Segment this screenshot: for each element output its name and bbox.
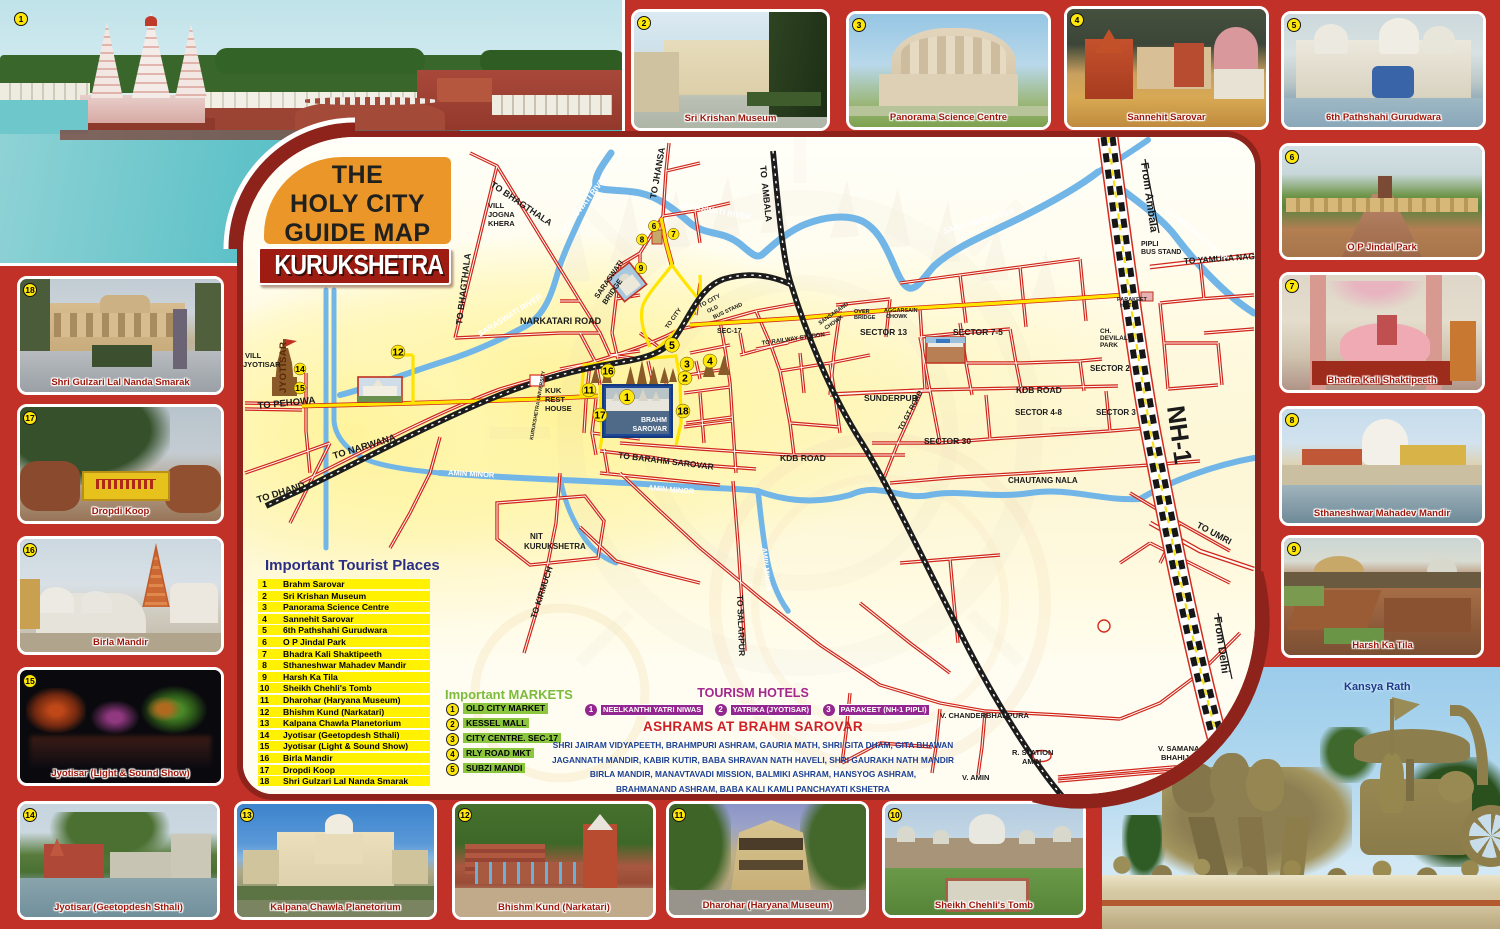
svg-text:KUK: KUK [545,386,562,395]
svg-text:4: 4 [707,357,713,368]
svg-text:KDB ROAD: KDB ROAD [1016,385,1062,395]
svg-text:REST: REST [545,395,565,404]
svg-text:5: 5 [669,340,675,352]
svg-text:8: 8 [640,235,645,244]
svg-text:SUNDERPUR: SUNDERPUR [864,393,918,403]
svg-text:2: 2 [682,374,688,385]
svg-text:JYOTISAR: JYOTISAR [243,360,281,369]
svg-text:SECTOR 4-8: SECTOR 4-8 [1015,408,1063,417]
svg-text:BRAHM: BRAHM [641,417,667,424]
svg-text:V. SAMANA: V. SAMANA [1158,744,1200,753]
svg-text:SEC-17: SEC-17 [717,328,742,335]
svg-text:CHOWK: CHOWK [886,314,907,320]
svg-text:HOTEL: HOTEL [1120,303,1139,309]
svg-text:1: 1 [624,392,630,404]
svg-text:BHAHIJ: BHAHIJ [1161,753,1189,762]
svg-text:NARKATARI ROAD: NARKATARI ROAD [520,316,602,326]
svg-text:NIT: NIT [530,532,543,541]
svg-text:12: 12 [392,348,404,359]
svg-text:KHERA: KHERA [488,219,515,228]
svg-text:JOGNA: JOGNA [488,210,515,219]
svg-text:3: 3 [684,360,690,371]
svg-text:KURUKSHETRA: KURUKSHETRA [524,542,586,551]
svg-text:PARK: PARK [1100,342,1118,349]
svg-text:16: 16 [602,367,614,378]
svg-text:CH.: CH. [1100,328,1111,335]
svg-text:BRIDGE: BRIDGE [854,315,876,321]
svg-text:7: 7 [671,230,676,239]
svg-text:CHAUTANG NALA: CHAUTANG NALA [1008,476,1078,485]
svg-text:17: 17 [594,411,606,422]
svg-text:KDB ROAD: KDB ROAD [780,453,826,463]
svg-text:18: 18 [677,407,689,418]
svg-text:6: 6 [652,222,657,231]
svg-text:SAROVAR: SAROVAR [633,426,667,433]
svg-text:SECTOR 2: SECTOR 2 [1090,364,1130,373]
svg-text:HOUSE: HOUSE [545,404,572,413]
svg-text:PIPLI: PIPLI [1141,241,1159,248]
svg-text:SECTOR 13: SECTOR 13 [860,327,907,337]
svg-text:11: 11 [584,386,595,397]
svg-text:SECTOR 30: SECTOR 30 [924,436,971,446]
svg-text:VILL: VILL [488,201,505,210]
svg-text:15: 15 [295,383,305,393]
svg-text:BUS STAND: BUS STAND [1141,249,1181,256]
svg-text:SECTOR 7-5: SECTOR 7-5 [953,327,1003,337]
svg-text:14: 14 [295,364,305,374]
svg-text:SECTOR 3: SECTOR 3 [1096,408,1136,417]
svg-text:VILL: VILL [245,351,262,360]
svg-text:9: 9 [639,263,644,273]
svg-text:TO SALARPUR: TO SALARPUR [735,595,747,657]
svg-text:DEVILAL: DEVILAL [1100,335,1128,342]
